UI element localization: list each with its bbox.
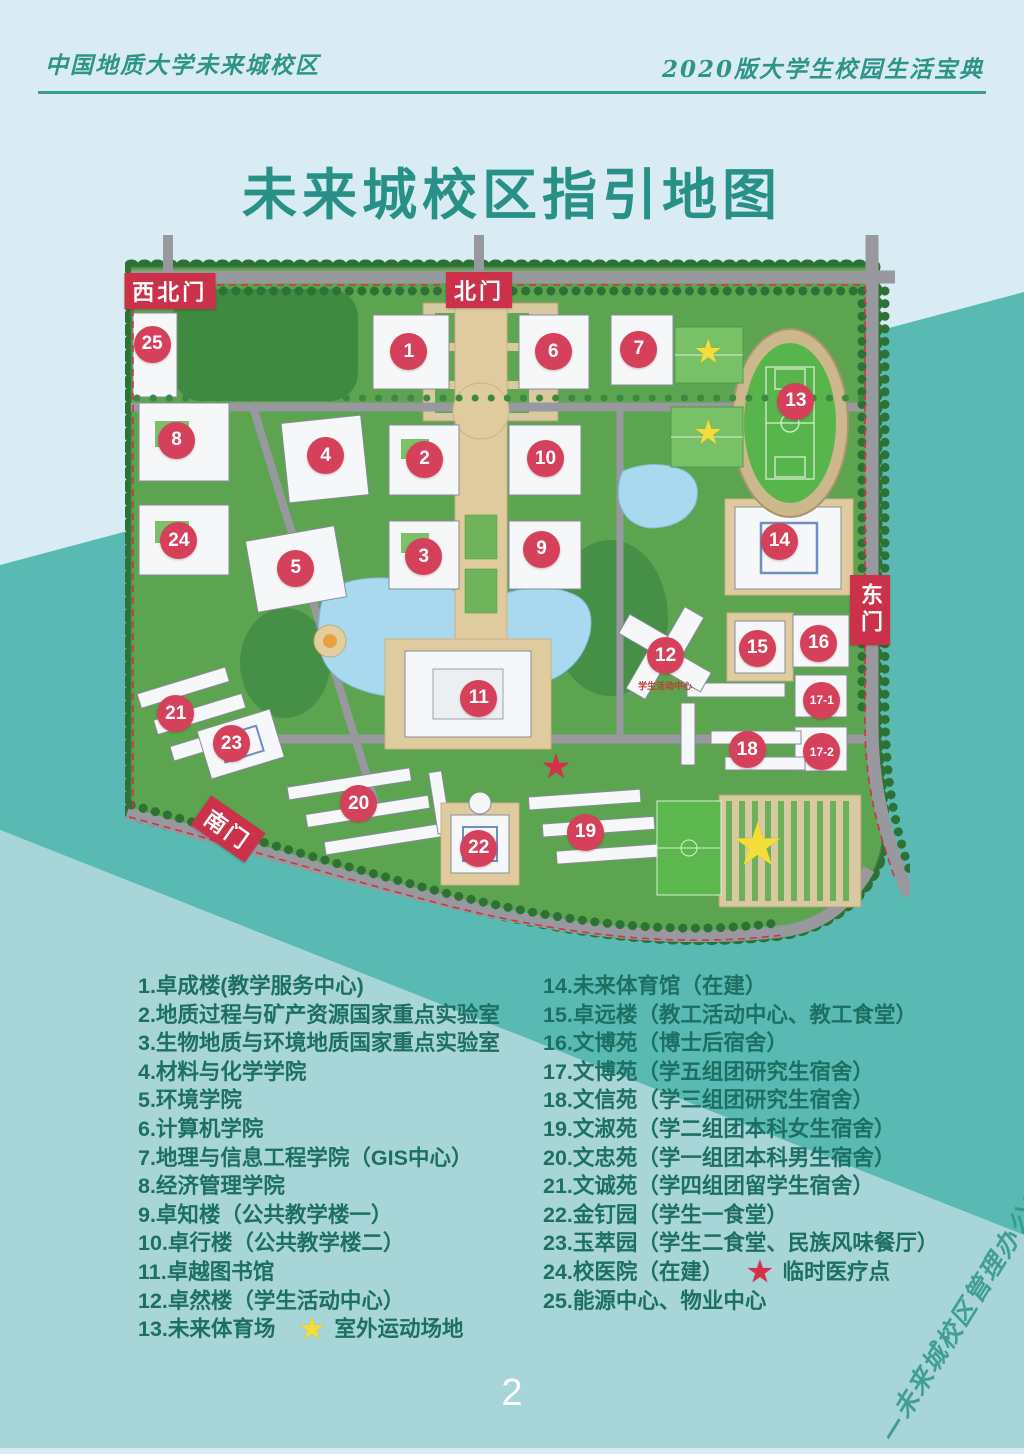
legend-item: 4.材料与化学学院	[138, 1058, 500, 1087]
legend-column-left: 1.卓成楼(教学服务中心)2.地质过程与矿产资源国家重点实验室3.生物地质与环境…	[138, 972, 500, 1344]
legend-item-text: 14.未来体育馆（在建）	[543, 974, 766, 998]
map-marker-17-2: 17-2	[803, 733, 840, 770]
legend-item-text: 25.能源中心、物业中心	[543, 1289, 766, 1313]
map-marker-3: 3	[405, 538, 442, 575]
map-marker-22: 22	[460, 830, 497, 867]
legend-item: 13.未来体育场★室外运动场地	[138, 1315, 500, 1344]
legend-item-text: 18.文信苑（学三组团研究生宿舍）	[543, 1088, 874, 1112]
header-left-text: 中国地质大学未来城校区	[45, 46, 320, 80]
legend-item: 7.地理与信息工程学院（GIS中心）	[138, 1144, 500, 1173]
page-header: 中国地质大学未来城校区 2020版大学生校园生活宝典	[0, 46, 1024, 80]
legend-item-text: 10.卓行楼（公共教学楼二）	[138, 1231, 404, 1255]
header-divider	[38, 91, 986, 94]
legend-item-text: 19.文淑苑（学二组团本科女生宿舍）	[543, 1117, 895, 1141]
legend-item: 15.卓远楼（教工活动中心、教工食堂）	[543, 1001, 938, 1030]
legend-item-text: 13.未来体育场	[138, 1317, 275, 1341]
page-title: 未来城校区指引地图	[0, 150, 1024, 230]
legend-item: 23.玉萃园（学生二食堂、民族风味餐厅）	[543, 1229, 938, 1258]
red-star-icon: ★	[747, 1256, 772, 1287]
header-right-text: 2020版大学生校园生活宝典	[662, 50, 984, 84]
legend-item-text: 4.材料与化学学院	[138, 1060, 306, 1084]
map-overlay: 1234567891011121314151617-117-2181920212…	[125, 233, 910, 966]
legend-item-text: 16.文博苑（博士后宿舍）	[543, 1031, 788, 1055]
legend-item: 1.卓成楼(教学服务中心)	[138, 972, 500, 1001]
map-marker-24: 24	[160, 522, 197, 559]
legend-item-text: 1.卓成楼(教学服务中心)	[138, 974, 364, 998]
legend-item-text: 15.卓远楼（教工活动中心、教工食堂）	[543, 1003, 917, 1027]
map-marker-12: 12	[647, 637, 684, 674]
legend-item-text: 9.卓知楼（公共教学楼一）	[138, 1203, 392, 1227]
gate-label-西北门: 西北门	[124, 273, 215, 309]
yellow-star-icon: ★	[731, 815, 785, 875]
map-marker-18: 18	[729, 731, 766, 768]
map-marker-11: 11	[460, 680, 497, 717]
red-star-icon: ★	[541, 750, 571, 784]
map-marker-23: 23	[213, 725, 250, 762]
legend-item: 8.经济管理学院	[138, 1172, 500, 1201]
legend-item: 18.文信苑（学三组团研究生宿舍）	[543, 1086, 938, 1115]
legend-item-text: 3.生物地质与环境地质国家重点实验室	[138, 1031, 500, 1055]
legend-item: 24.校医院（在建）★临时医疗点	[543, 1258, 938, 1287]
map-marker-21: 21	[157, 695, 194, 732]
legend-item: 22.金钉园（学生一食堂）	[543, 1201, 938, 1230]
legend-item-text: 11.卓越图书馆	[138, 1260, 274, 1284]
gate-label-东门: 东门	[850, 575, 890, 645]
legend-item: 17.文博苑（学五组团研究生宿舍）	[543, 1058, 938, 1087]
map-annotation: 学生活动中心	[638, 679, 692, 692]
map-marker-25: 25	[134, 326, 171, 363]
map-marker-5: 5	[277, 550, 314, 587]
legend-item: 19.文淑苑（学二组团本科女生宿舍）	[543, 1115, 938, 1144]
legend-item: 6.计算机学院	[138, 1115, 500, 1144]
legend-item-text: 20.文忠苑（学一组团本科男生宿舍）	[543, 1146, 895, 1170]
legend-item-text: 7.地理与信息工程学院（GIS中心）	[138, 1146, 472, 1170]
map-marker-14: 14	[761, 523, 798, 560]
legend-item-text: 17.文博苑（学五组团研究生宿舍）	[543, 1060, 874, 1084]
map-marker-6: 6	[535, 333, 572, 370]
campus-map: 1234567891011121314151617-117-2181920212…	[125, 233, 910, 966]
map-marker-8: 8	[158, 422, 195, 459]
map-marker-17-1: 17-1	[803, 682, 840, 719]
map-marker-13: 13	[777, 383, 814, 420]
legend-item-text: 23.玉萃园（学生二食堂、民族风味餐厅）	[543, 1231, 938, 1255]
legend-item-suffix: 临时医疗点	[783, 1260, 891, 1284]
yellow-star-icon: ★	[693, 416, 723, 450]
legend-item: 12.卓然楼（学生活动中心）	[138, 1287, 500, 1316]
legend-item-text: 5.环境学院	[138, 1088, 242, 1112]
gate-label-南门: 南门	[190, 795, 265, 862]
legend-column-right: 14.未来体育馆（在建）15.卓远楼（教工活动中心、教工食堂）16.文博苑（博士…	[543, 972, 938, 1315]
legend-item-suffix: 室外运动场地	[335, 1317, 464, 1341]
legend-item: 25.能源中心、物业中心	[543, 1287, 938, 1316]
page-number: 2	[0, 1372, 1024, 1415]
map-marker-1: 1	[390, 333, 427, 370]
yellow-star-icon: ★	[693, 335, 723, 369]
legend-item: 20.文忠苑（学一组团本科男生宿舍）	[543, 1144, 938, 1173]
map-marker-2: 2	[406, 441, 443, 478]
map-marker-10: 10	[527, 440, 564, 477]
legend-item: 9.卓知楼（公共教学楼一）	[138, 1201, 500, 1230]
map-marker-4: 4	[307, 437, 344, 474]
legend-item-text: 21.文诚苑（学四组团留学生宿舍）	[543, 1174, 874, 1198]
legend-item: 10.卓行楼（公共教学楼二）	[138, 1229, 500, 1258]
legend-item: 3.生物地质与环境地质国家重点实验室	[138, 1029, 500, 1058]
legend-item-text: 6.计算机学院	[138, 1117, 263, 1141]
map-marker-19: 19	[567, 814, 604, 851]
yellow-star-icon: ★	[299, 1313, 324, 1344]
legend-item-text: 8.经济管理学院	[138, 1174, 285, 1198]
gate-label-北门: 北门	[446, 272, 512, 308]
map-marker-16: 16	[800, 625, 837, 662]
legend-item-text: 24.校医院（在建）	[543, 1260, 723, 1284]
map-marker-9: 9	[523, 531, 560, 568]
legend-item-text: 22.金钉园（学生一食堂）	[543, 1203, 788, 1227]
legend-item-text: 12.卓然楼（学生活动中心）	[138, 1289, 404, 1313]
legend-item: 2.地质过程与矿产资源国家重点实验室	[138, 1001, 500, 1030]
map-marker-20: 20	[340, 785, 377, 822]
map-marker-15: 15	[739, 630, 776, 667]
legend-item: 21.文诚苑（学四组团留学生宿舍）	[543, 1172, 938, 1201]
legend-item-text: 2.地质过程与矿产资源国家重点实验室	[138, 1003, 500, 1027]
legend-item: 14.未来体育馆（在建）	[543, 972, 938, 1001]
map-marker-7: 7	[620, 331, 657, 368]
legend-item: 5.环境学院	[138, 1086, 500, 1115]
legend-item: 16.文博苑（博士后宿舍）	[543, 1029, 938, 1058]
legend-item: 11.卓越图书馆	[138, 1258, 500, 1287]
